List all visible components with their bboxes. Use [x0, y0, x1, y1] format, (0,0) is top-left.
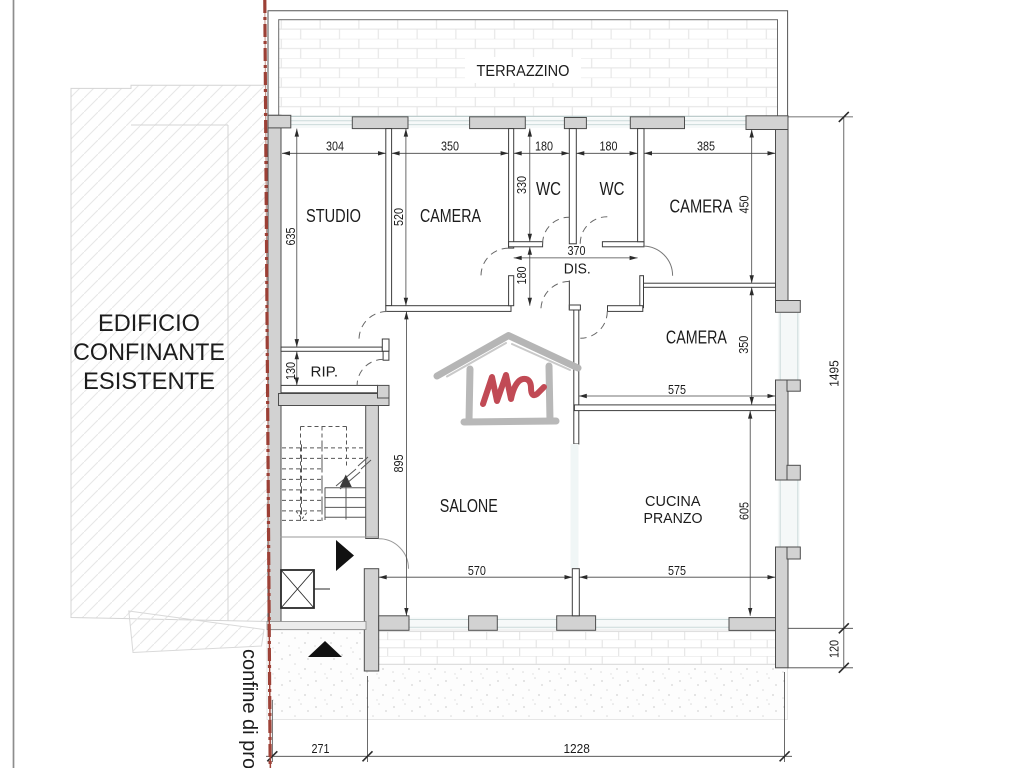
svg-text:635: 635 [284, 227, 298, 245]
svg-text:330: 330 [515, 176, 529, 194]
svg-text:CUCINA: CUCINA [645, 494, 701, 510]
svg-text:TERRAZZINO: TERRAZZINO [477, 63, 570, 80]
svg-text:CAMERA: CAMERA [670, 197, 733, 217]
svg-text:1228: 1228 [563, 742, 590, 756]
svg-text:WC: WC [536, 179, 561, 199]
svg-text:271: 271 [312, 742, 330, 756]
svg-text:575: 575 [668, 564, 686, 578]
svg-text:180: 180 [535, 140, 553, 154]
svg-text:PRANZO: PRANZO [644, 511, 703, 527]
svg-text:370: 370 [568, 244, 586, 258]
svg-text:1495: 1495 [828, 360, 842, 387]
svg-text:575: 575 [668, 383, 686, 397]
svg-text:350: 350 [737, 336, 751, 354]
svg-text:570: 570 [468, 564, 486, 578]
svg-text:520: 520 [392, 208, 406, 226]
svg-text:SALONE: SALONE [440, 496, 498, 516]
svg-text:confine di proprietà: confine di proprietà [238, 649, 260, 768]
svg-text:ESISTENTE: ESISTENTE [83, 368, 215, 395]
svg-text:130: 130 [284, 362, 298, 380]
svg-text:304: 304 [326, 140, 344, 154]
svg-text:350: 350 [441, 140, 459, 154]
svg-text:WC: WC [600, 179, 625, 199]
svg-text:180: 180 [600, 140, 618, 154]
svg-text:STUDIO: STUDIO [306, 206, 361, 226]
svg-text:450: 450 [737, 195, 751, 213]
svg-text:CAMERA: CAMERA [420, 206, 481, 226]
svg-text:RIP.: RIP. [311, 364, 339, 381]
svg-text:CONFINANTE: CONFINANTE [73, 339, 225, 366]
svg-text:DIS.: DIS. [564, 262, 591, 278]
svg-text:180: 180 [515, 266, 529, 284]
svg-text:895: 895 [392, 454, 406, 472]
svg-text:385: 385 [697, 140, 715, 154]
svg-text:EDIFICIO: EDIFICIO [98, 310, 200, 337]
svg-text:605: 605 [738, 502, 752, 520]
svg-text:CAMERA: CAMERA [666, 328, 727, 348]
svg-text:120: 120 [828, 640, 842, 658]
